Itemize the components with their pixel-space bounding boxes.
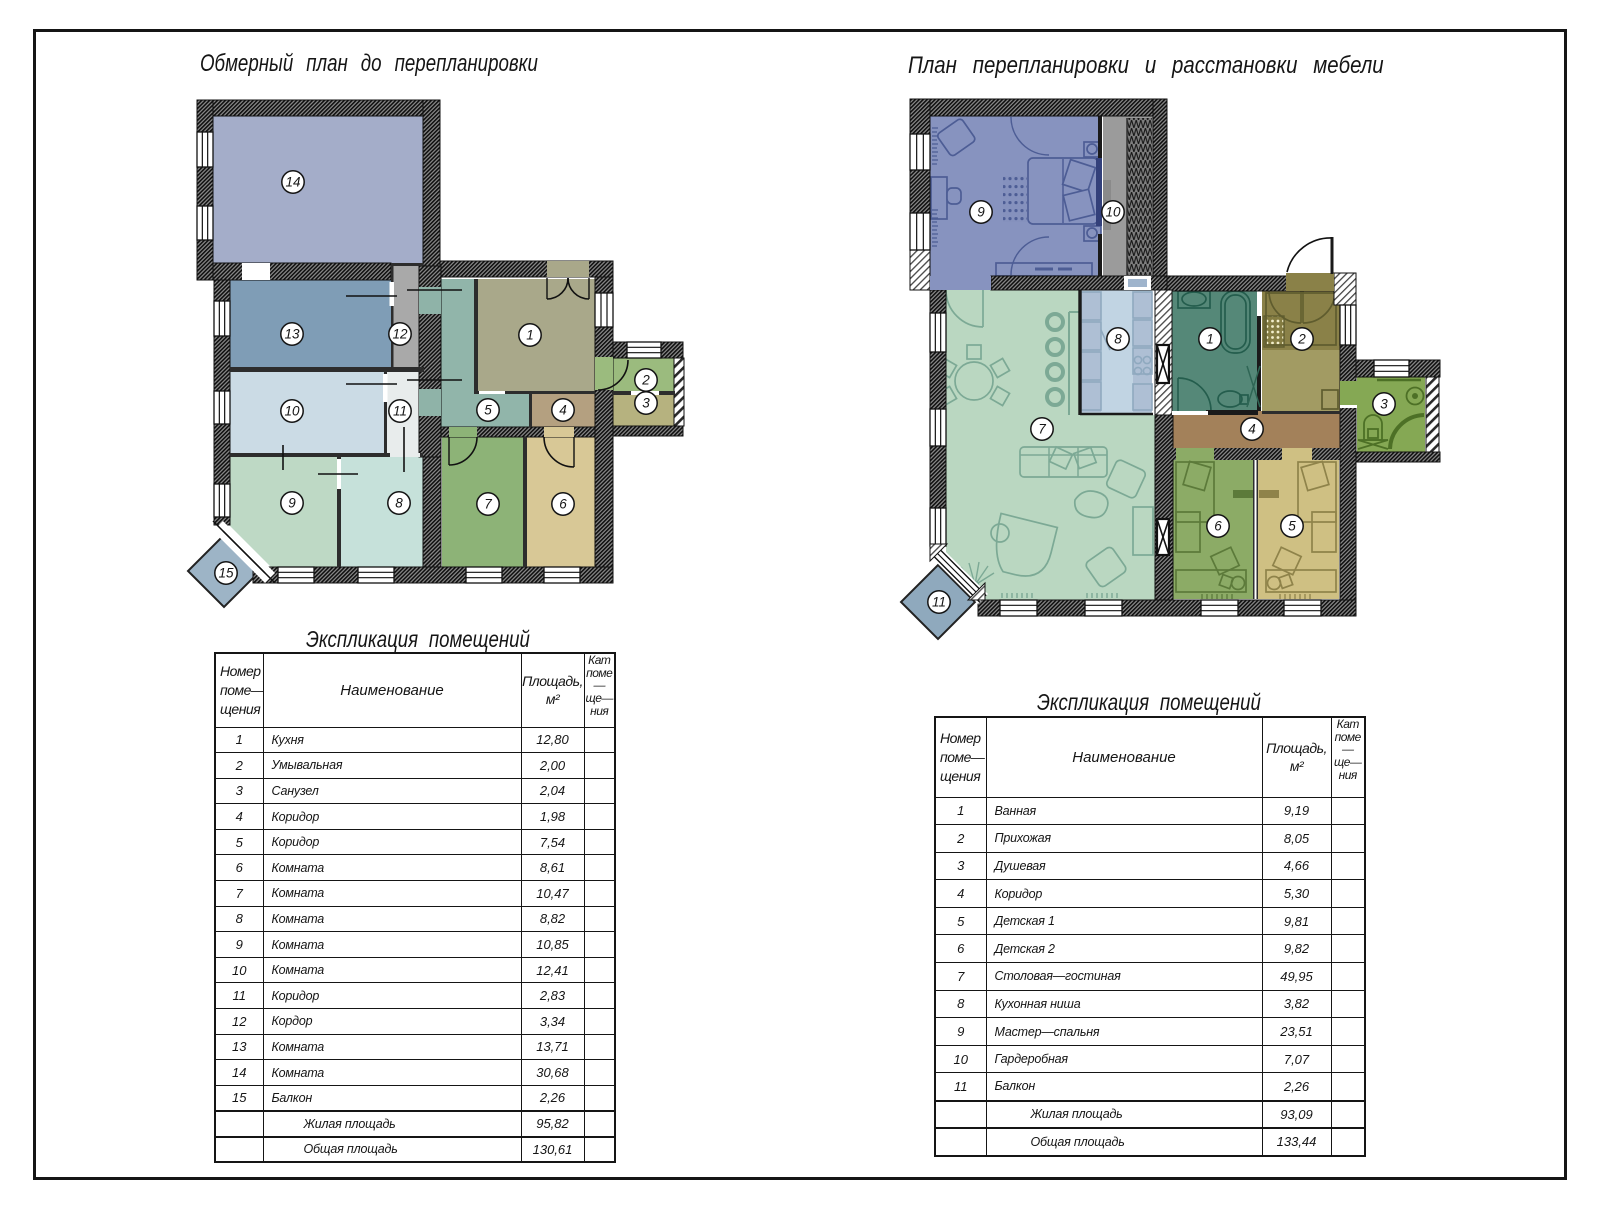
svg-text:11: 11 bbox=[932, 595, 946, 610]
svg-text:12: 12 bbox=[392, 327, 408, 342]
svg-text:2: 2 bbox=[641, 373, 650, 388]
svg-text:7: 7 bbox=[1038, 422, 1046, 437]
svg-text:11: 11 bbox=[393, 404, 407, 419]
svg-text:5: 5 bbox=[1288, 519, 1296, 534]
svg-text:7: 7 bbox=[484, 497, 492, 512]
svg-text:4: 4 bbox=[559, 403, 567, 418]
svg-text:1: 1 bbox=[526, 328, 534, 343]
svg-text:10: 10 bbox=[284, 404, 300, 419]
svg-text:4: 4 bbox=[1248, 422, 1256, 437]
svg-text:6: 6 bbox=[559, 497, 567, 512]
svg-text:8: 8 bbox=[1114, 332, 1122, 347]
svg-text:15: 15 bbox=[218, 566, 234, 581]
svg-text:10: 10 bbox=[1105, 205, 1121, 220]
svg-text:2: 2 bbox=[1297, 332, 1306, 347]
svg-text:13: 13 bbox=[284, 327, 300, 342]
svg-text:8: 8 bbox=[395, 496, 403, 511]
svg-text:9: 9 bbox=[977, 205, 985, 220]
svg-text:3: 3 bbox=[1380, 397, 1388, 412]
svg-text:9: 9 bbox=[288, 496, 296, 511]
svg-text:14: 14 bbox=[285, 175, 300, 190]
svg-text:6: 6 bbox=[1214, 519, 1222, 534]
svg-text:5: 5 bbox=[484, 403, 492, 418]
svg-text:3: 3 bbox=[642, 396, 650, 411]
svg-text:1: 1 bbox=[1206, 332, 1214, 347]
